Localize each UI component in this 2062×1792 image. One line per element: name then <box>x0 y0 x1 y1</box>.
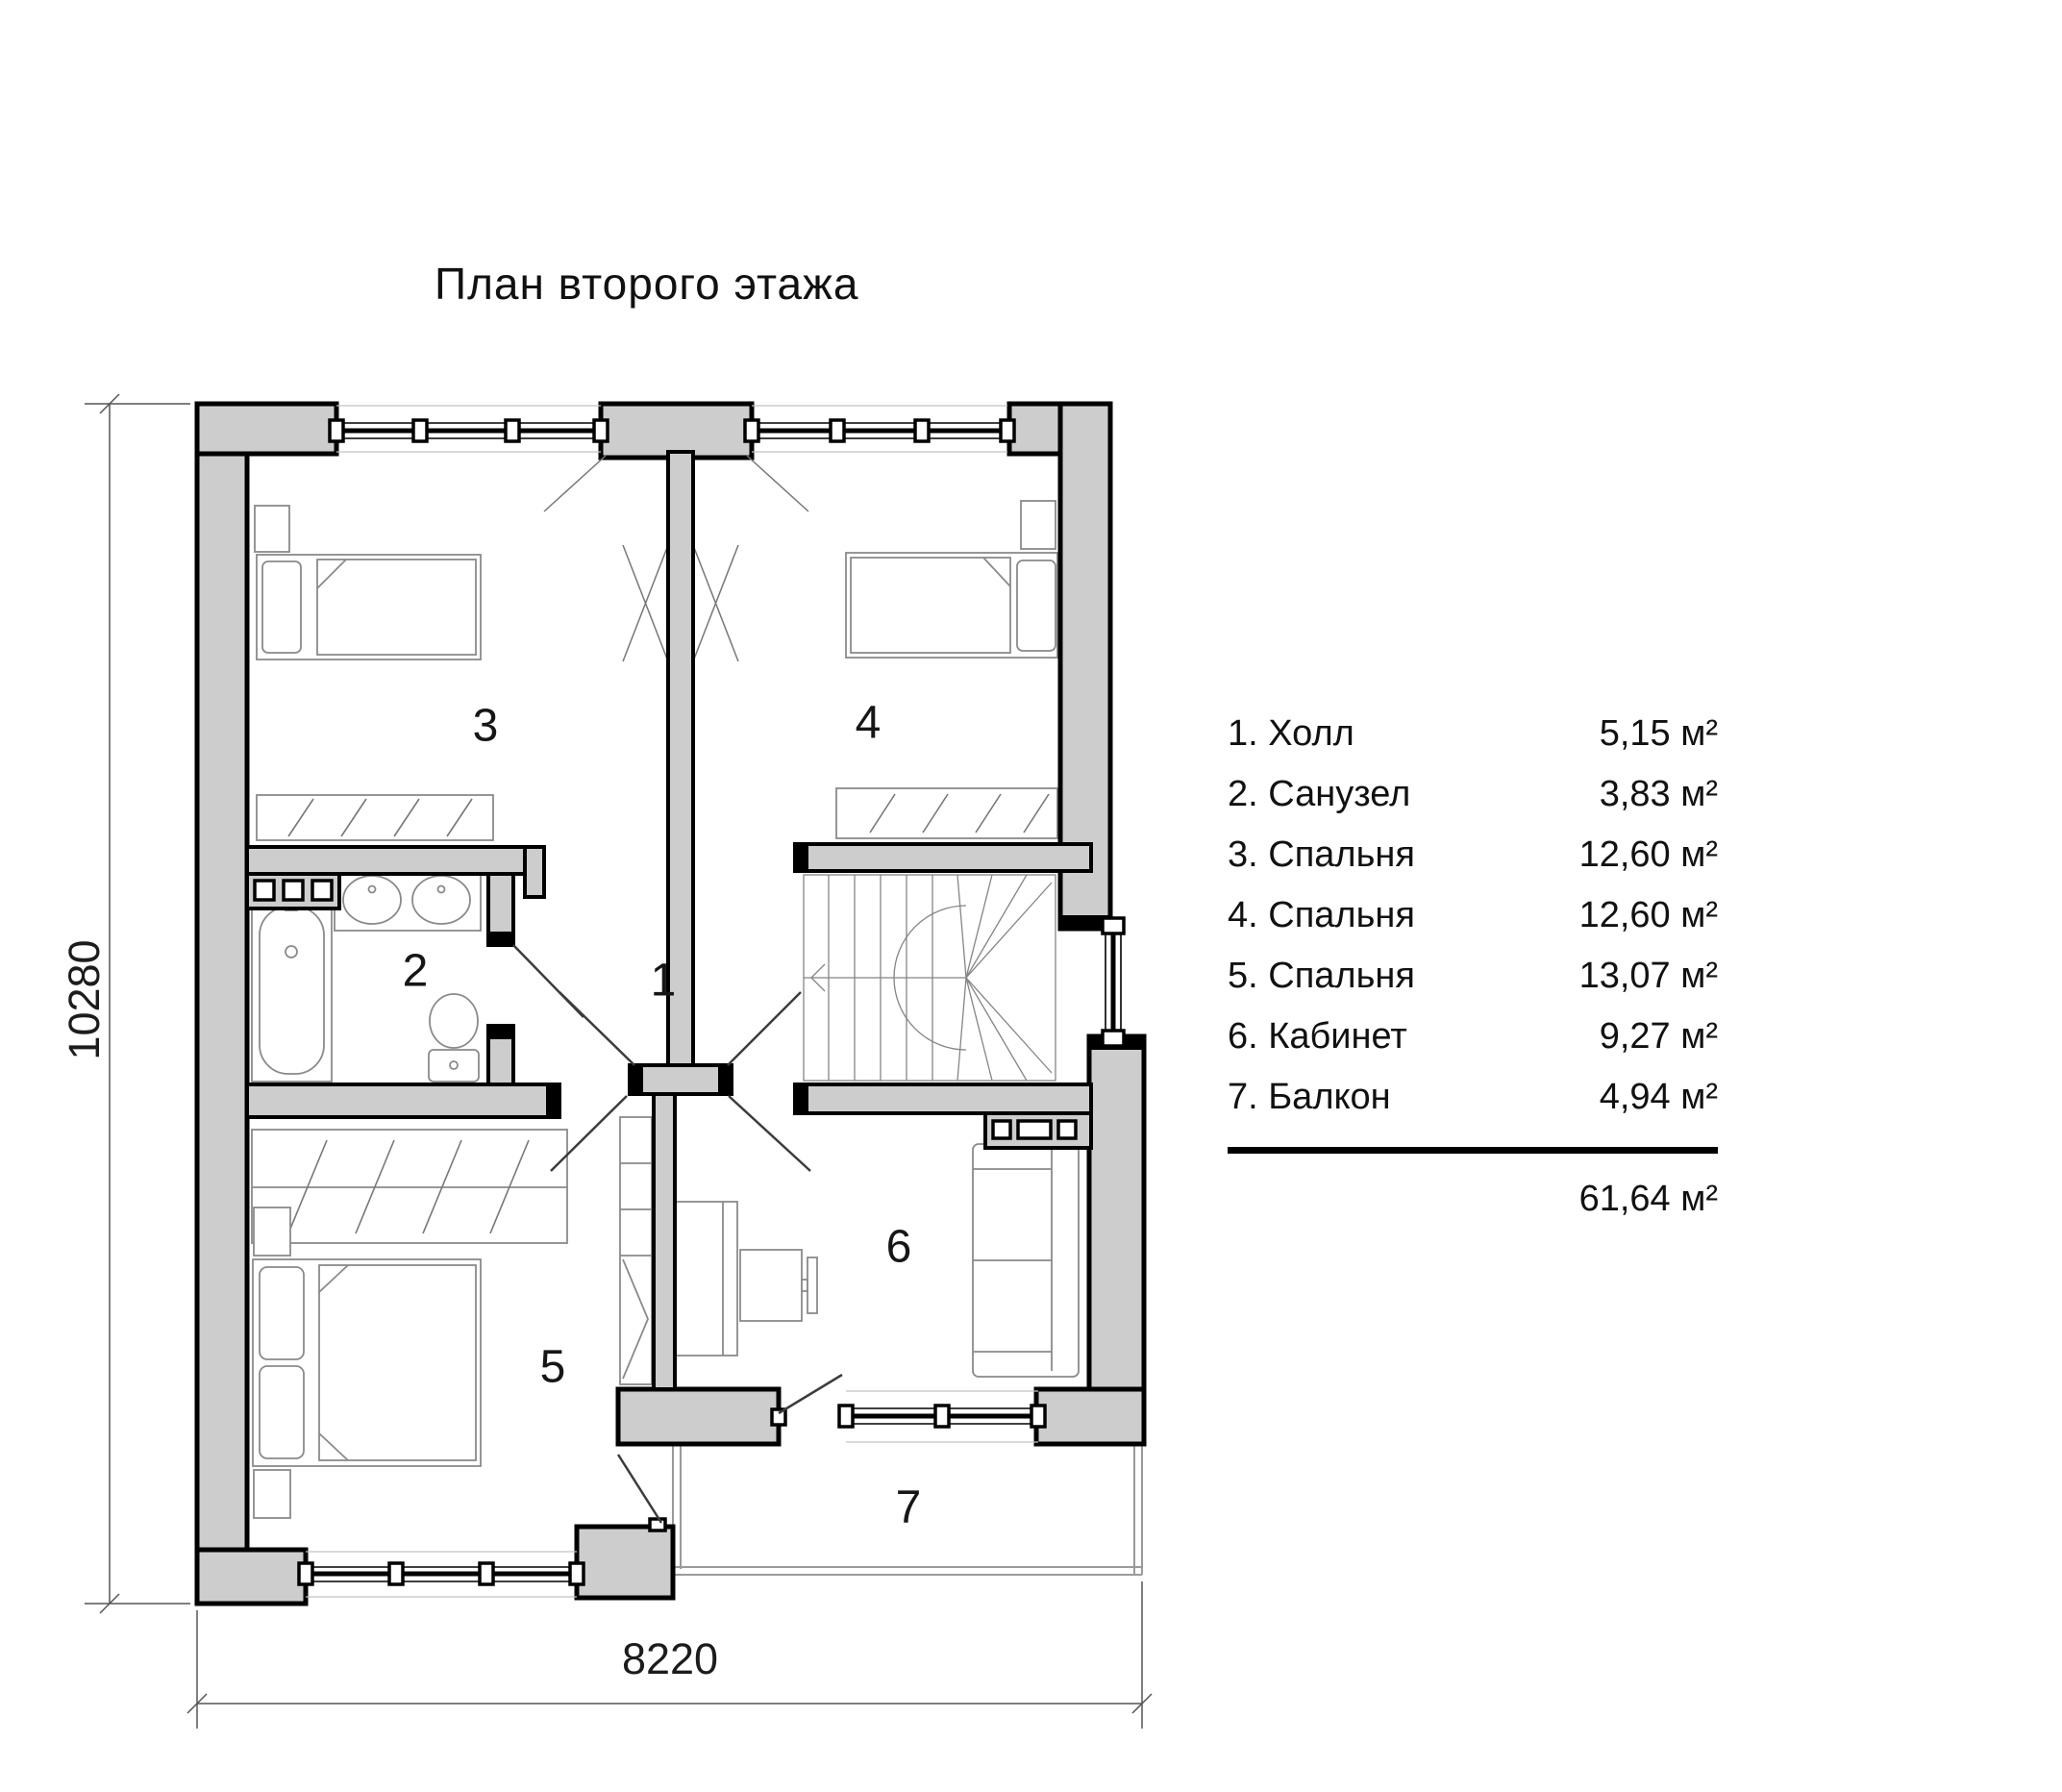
pillow-icon <box>260 1366 304 1458</box>
bathtub-icon <box>252 899 332 1082</box>
cabinet-icon <box>676 1202 737 1356</box>
pillow-icon <box>260 1267 304 1359</box>
legend-row: 3. Спальня 12,60 м² <box>1228 825 1718 885</box>
room5-furniture <box>252 1117 652 1518</box>
pillow-icon <box>1017 560 1056 651</box>
nightstand-icon <box>1021 501 1056 549</box>
pillow-icon <box>262 561 301 653</box>
legend-room-name: 7. Балкон <box>1228 1077 1391 1118</box>
stair-north-wall <box>795 844 1091 871</box>
legend-room-name: 2. Санузел <box>1228 774 1410 815</box>
bathroom-door-leaf <box>513 945 584 1017</box>
room-legend: 1. Холл 5,15 м² 2. Санузел 3,83 м² 3. Сп… <box>1228 704 1718 1220</box>
stair-south-wall <box>795 1084 1091 1113</box>
room4-furniture <box>836 501 1057 838</box>
legend-room-area: 3,83 м² <box>1600 774 1718 815</box>
legend-room-area: 4,94 м² <box>1600 1077 1718 1118</box>
legend-row: 7. Балкон 4,94 м² <box>1228 1067 1718 1128</box>
legend-room-area: 12,60 м² <box>1579 834 1718 876</box>
monitor-icon <box>807 1257 817 1313</box>
room3-furniture <box>255 506 493 840</box>
partition-rooms-5-6 <box>654 1094 675 1389</box>
room6-furniture <box>676 1144 1079 1377</box>
room-label-bedroom3: 3 <box>473 700 499 753</box>
legend-room-area: 13,07 м² <box>1579 956 1718 997</box>
legend-room-area: 9,27 м² <box>1600 1016 1718 1058</box>
nightstand-icon <box>254 1470 290 1518</box>
desk-icon <box>740 1250 802 1321</box>
legend-row: 2. Санузел 3,83 м² <box>1228 764 1718 825</box>
staircase <box>804 875 1056 1081</box>
room-label-bathroom: 2 <box>403 945 429 998</box>
room-label-office: 6 <box>886 1221 912 1274</box>
legend-room-name: 5. Спальня <box>1228 956 1415 997</box>
legend-room-area: 5,15 м² <box>1600 713 1718 755</box>
legend-room-name: 4. Спальня <box>1228 895 1415 936</box>
legend-divider <box>1228 1147 1718 1154</box>
legend-row: 6. Кабинет 9,27 м² <box>1228 1007 1718 1067</box>
wardrobe-icon <box>252 1130 567 1243</box>
legend-total-area: 61,64 м² <box>1228 1179 1718 1220</box>
legend-room-name: 3. Спальня <box>1228 834 1415 876</box>
room-label-bedroom4: 4 <box>856 697 882 750</box>
legend-row: 1. Холл 5,15 м² <box>1228 704 1718 764</box>
legend-room-area: 12,60 м² <box>1579 895 1718 936</box>
legend-row: 4. Спальня 12,60 м² <box>1228 885 1718 946</box>
room-label-bedroom5: 5 <box>540 1341 566 1394</box>
balcony-door-room6-leaf <box>779 1375 842 1413</box>
balcony-door-room5-leaf <box>618 1455 661 1523</box>
legend-room-name: 6. Кабинет <box>1228 1016 1407 1058</box>
wardrobe-icon <box>257 795 493 840</box>
nightstand-icon <box>255 506 289 552</box>
room4-door-leaf <box>728 992 801 1065</box>
floor-plan-page: План второго этажа 1 2 3 4 5 6 7 10280 8… <box>0 0 2062 1792</box>
dimension-height: 10280 <box>60 939 110 1059</box>
legend-row: 5. Спальня 13,07 м² <box>1228 946 1718 1007</box>
legend-room-name: 1. Холл <box>1228 713 1354 755</box>
toilet-icon <box>430 994 478 1048</box>
room-label-balcony: 7 <box>896 1481 922 1534</box>
nightstand-icon <box>254 1207 290 1256</box>
closet-icon <box>620 1117 652 1384</box>
bathroom-south-wall <box>247 1084 559 1117</box>
room3-south-wall <box>247 847 544 874</box>
dimension-width: 8220 <box>622 1634 718 1684</box>
page-title: План второго этажа <box>435 258 858 310</box>
floor-plan-drawing <box>0 0 2062 1792</box>
room-label-hall: 1 <box>651 955 677 1008</box>
